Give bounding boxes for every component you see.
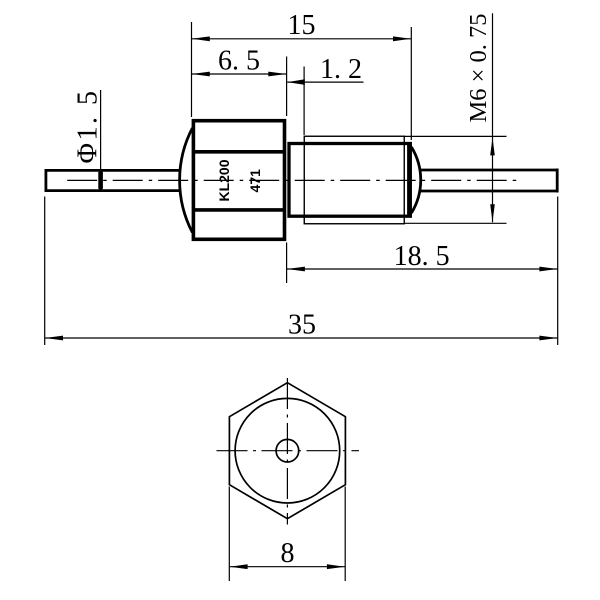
svg-text:6. 5: 6. 5 <box>218 46 260 77</box>
svg-text:KL200: KL200 <box>216 159 232 201</box>
svg-text:471: 471 <box>247 169 263 193</box>
svg-text:Φ1. 5: Φ1. 5 <box>73 89 104 164</box>
svg-text:15: 15 <box>288 10 316 41</box>
svg-text:1. 2: 1. 2 <box>320 54 362 85</box>
svg-text:18. 5: 18. 5 <box>394 241 450 272</box>
svg-text:8: 8 <box>281 538 295 569</box>
svg-text:M6 × 0. 75: M6 × 0. 75 <box>465 13 492 122</box>
svg-text:35: 35 <box>288 310 316 341</box>
